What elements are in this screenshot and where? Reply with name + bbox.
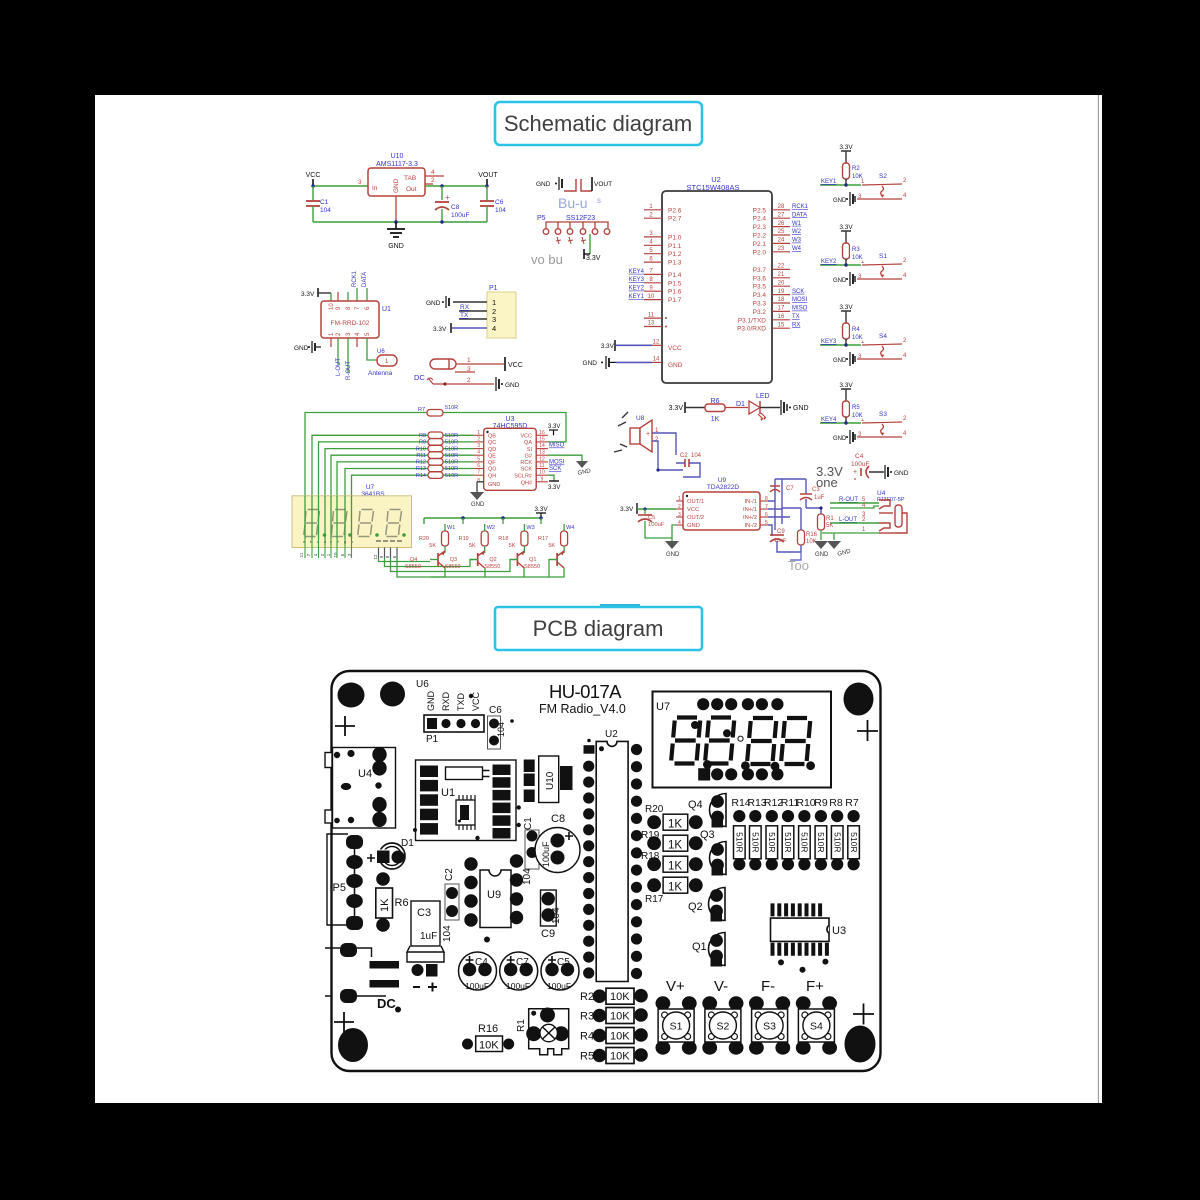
svg-text:27: 27 xyxy=(778,212,785,218)
svg-text:P1: P1 xyxy=(489,285,498,292)
svg-text:C7: C7 xyxy=(786,486,794,492)
svg-text:SS12F23: SS12F23 xyxy=(566,215,595,222)
svg-text:C6: C6 xyxy=(495,199,504,206)
svg-text:U2: U2 xyxy=(605,729,618,740)
svg-text:S8550: S8550 xyxy=(484,564,500,570)
svg-text:HU-017A: HU-017A xyxy=(549,681,622,702)
svg-text:10: 10 xyxy=(648,294,655,300)
svg-text:QH: QH xyxy=(488,473,496,479)
svg-text:10K: 10K xyxy=(479,1040,499,1052)
svg-text:R10: R10 xyxy=(796,797,815,809)
svg-text:104: 104 xyxy=(522,868,533,885)
svg-text:R9: R9 xyxy=(814,797,828,809)
svg-text:100uF: 100uF xyxy=(547,981,571,991)
svg-text:R3: R3 xyxy=(852,247,860,253)
svg-text:5K: 5K xyxy=(469,543,476,549)
svg-text:P1.3: P1.3 xyxy=(668,260,682,267)
svg-text:7: 7 xyxy=(477,470,480,476)
svg-text:3: 3 xyxy=(358,179,362,186)
svg-text:13: 13 xyxy=(648,321,655,327)
svg-text:Q3: Q3 xyxy=(700,829,715,841)
svg-text:R14: R14 xyxy=(416,473,426,479)
svg-text:10K: 10K xyxy=(852,255,863,261)
svg-text:W1: W1 xyxy=(447,525,455,531)
svg-text:104: 104 xyxy=(551,907,562,924)
svg-text:R10: R10 xyxy=(416,446,426,452)
svg-text:In: In xyxy=(372,185,378,192)
svg-text:25: 25 xyxy=(778,229,785,235)
svg-text:GND: GND xyxy=(668,362,683,369)
svg-text:100uF: 100uF xyxy=(648,522,665,528)
svg-text:D1: D1 xyxy=(736,401,745,408)
svg-text:vo bu: vo bu xyxy=(531,252,563,267)
svg-text:GND: GND xyxy=(815,552,829,558)
svg-text:1K: 1K xyxy=(668,819,682,831)
svg-text:KEY2: KEY2 xyxy=(821,259,837,265)
svg-text:C2: C2 xyxy=(680,453,688,459)
svg-text:C6: C6 xyxy=(489,705,502,716)
svg-text:3.3V: 3.3V xyxy=(301,291,315,298)
svg-text:10K: 10K xyxy=(610,1011,630,1023)
svg-text:3.3V: 3.3V xyxy=(548,485,560,491)
svg-text:VOUT: VOUT xyxy=(478,172,498,179)
svg-text:QG: QG xyxy=(488,467,497,473)
svg-text:1: 1 xyxy=(467,357,471,364)
svg-text:VCC: VCC xyxy=(306,172,321,179)
svg-text:LED: LED xyxy=(756,393,770,400)
svg-text:11: 11 xyxy=(539,463,544,469)
svg-text:12: 12 xyxy=(373,554,378,560)
svg-text:R1: R1 xyxy=(826,516,834,522)
svg-text:GND: GND xyxy=(894,470,909,477)
svg-text:100uF: 100uF xyxy=(506,981,530,991)
svg-text:3.3V: 3.3V xyxy=(586,255,601,262)
svg-text:P2.3: P2.3 xyxy=(753,224,767,231)
svg-text:3: 3 xyxy=(492,315,496,324)
svg-text:SCK: SCK xyxy=(792,289,804,295)
svg-text:PCB diagram: PCB diagram xyxy=(533,616,664,641)
svg-text:1: 1 xyxy=(678,496,681,502)
svg-text:15: 15 xyxy=(778,322,785,328)
svg-text:10K: 10K xyxy=(852,335,863,341)
svg-text:10K: 10K xyxy=(852,413,863,419)
svg-text:DC: DC xyxy=(414,373,425,382)
svg-text:S1: S1 xyxy=(670,1021,683,1033)
svg-text:17: 17 xyxy=(778,306,785,312)
svg-text:W3: W3 xyxy=(526,525,534,531)
svg-text:R4: R4 xyxy=(852,327,860,333)
svg-text:RCK: RCK xyxy=(520,460,532,466)
svg-text:5K: 5K xyxy=(548,543,555,549)
svg-text:R13: R13 xyxy=(416,466,426,472)
svg-text:8: 8 xyxy=(477,478,480,484)
svg-text:GND: GND xyxy=(583,360,598,367)
svg-text:14: 14 xyxy=(539,443,545,449)
svg-text:2: 2 xyxy=(431,177,435,184)
svg-text:W2: W2 xyxy=(487,525,495,531)
svg-text:R2: R2 xyxy=(852,166,860,172)
svg-text:VCC: VCC xyxy=(687,507,699,513)
svg-text:KEY2: KEY2 xyxy=(629,286,645,292)
svg-text:W4: W4 xyxy=(792,246,802,252)
svg-text:s: s xyxy=(597,196,601,205)
svg-text:QF: QF xyxy=(488,460,496,466)
svg-text:GND: GND xyxy=(488,482,500,488)
svg-text:GND: GND xyxy=(833,198,847,204)
svg-text:P3.4: P3.4 xyxy=(753,292,767,299)
svg-text:12: 12 xyxy=(653,340,660,346)
svg-text:R16: R16 xyxy=(478,1023,498,1035)
svg-text:Schematic diagram: Schematic diagram xyxy=(504,111,692,136)
svg-text:104: 104 xyxy=(496,722,506,737)
svg-text:U6: U6 xyxy=(416,679,429,690)
svg-text:KEY3: KEY3 xyxy=(821,339,837,345)
svg-text:KEY1: KEY1 xyxy=(629,294,645,300)
svg-text:RCK1: RCK1 xyxy=(352,270,358,287)
svg-text:GND: GND xyxy=(294,345,309,352)
svg-text:P1.5: P1.5 xyxy=(668,280,682,287)
svg-text:W1: W1 xyxy=(792,221,802,227)
svg-text:3.3V: 3.3V xyxy=(620,506,634,513)
svg-text:QB: QB xyxy=(488,434,496,440)
svg-text:100uF: 100uF xyxy=(541,841,551,867)
svg-text:GND: GND xyxy=(505,382,520,389)
svg-text:S8550: S8550 xyxy=(445,564,461,570)
svg-text:R7: R7 xyxy=(418,407,425,413)
svg-text:C9: C9 xyxy=(777,529,785,535)
svg-text:13: 13 xyxy=(539,450,545,456)
svg-text:C5: C5 xyxy=(557,957,570,968)
svg-text:Out: Out xyxy=(406,186,417,193)
svg-text:3.3V: 3.3V xyxy=(839,144,853,151)
svg-text:5K: 5K xyxy=(826,523,833,529)
svg-text:510R: 510R xyxy=(445,405,458,411)
svg-text:C3: C3 xyxy=(417,907,431,919)
svg-text:C8: C8 xyxy=(451,204,460,211)
svg-text:S8550: S8550 xyxy=(405,564,421,570)
svg-text:R11: R11 xyxy=(416,453,426,459)
svg-text:1K: 1K xyxy=(668,882,682,894)
svg-text:P2.6: P2.6 xyxy=(668,207,682,214)
svg-text:+: + xyxy=(646,431,650,438)
svg-text:GND: GND xyxy=(426,691,436,712)
svg-text:100uF: 100uF xyxy=(465,981,489,991)
svg-text:U4: U4 xyxy=(877,490,886,497)
svg-text:QC: QC xyxy=(488,440,496,446)
svg-text:11: 11 xyxy=(299,552,304,557)
svg-text:F-: F- xyxy=(761,978,775,995)
svg-text:QD: QD xyxy=(488,447,496,453)
svg-text:100uF: 100uF xyxy=(451,212,469,219)
svg-text:GND: GND xyxy=(471,502,485,508)
svg-text:SCK: SCK xyxy=(521,467,533,473)
svg-text:GND: GND xyxy=(536,181,551,188)
svg-text:KEY3: KEY3 xyxy=(629,277,645,283)
svg-text:R-OUT: R-OUT xyxy=(346,361,352,380)
svg-text:10: 10 xyxy=(539,470,545,476)
svg-text:S1: S1 xyxy=(879,253,887,260)
svg-text:U4: U4 xyxy=(358,768,372,780)
svg-text:one: one xyxy=(816,475,838,490)
svg-text:U10: U10 xyxy=(391,153,404,160)
svg-text:R18: R18 xyxy=(641,851,660,862)
svg-text:23: 23 xyxy=(778,246,785,252)
svg-text:6: 6 xyxy=(477,463,480,469)
svg-text:5K: 5K xyxy=(509,543,516,549)
svg-text:U8: U8 xyxy=(636,415,645,422)
svg-text:P1: P1 xyxy=(426,734,439,745)
svg-text:C4: C4 xyxy=(855,453,864,460)
svg-text:C1: C1 xyxy=(320,199,329,206)
svg-text:P3.0/RXD: P3.0/RXD xyxy=(737,326,766,333)
svg-text:R16: R16 xyxy=(806,532,818,538)
svg-text:QA: QA xyxy=(524,440,532,446)
svg-text:5: 5 xyxy=(477,456,480,462)
svg-text:S4: S4 xyxy=(810,1021,823,1033)
svg-text:Q1: Q1 xyxy=(529,557,536,563)
svg-text:MISO: MISO xyxy=(792,306,808,312)
svg-text:VOUT: VOUT xyxy=(594,181,612,188)
svg-text:U10: U10 xyxy=(545,771,556,790)
svg-text:FM Radio_V4.0: FM Radio_V4.0 xyxy=(539,702,626,716)
svg-text:1K: 1K xyxy=(379,898,391,912)
svg-text:4: 4 xyxy=(477,450,480,456)
svg-text:R3: R3 xyxy=(580,1011,594,1023)
svg-text:6: 6 xyxy=(765,512,768,518)
svg-text:16: 16 xyxy=(778,314,785,320)
svg-text:C8: C8 xyxy=(551,813,565,825)
svg-text:P2.7: P2.7 xyxy=(668,216,682,223)
svg-text:U9: U9 xyxy=(487,889,501,901)
svg-text:4: 4 xyxy=(678,520,681,526)
svg-text:3.3V: 3.3V xyxy=(433,326,447,333)
svg-text:GND: GND xyxy=(393,178,400,193)
svg-text:510R: 510R xyxy=(445,446,458,452)
svg-text:R9: R9 xyxy=(419,440,426,446)
svg-text:P1.1: P1.1 xyxy=(668,243,682,250)
svg-text:22: 22 xyxy=(778,264,785,270)
svg-text:RX: RX xyxy=(792,322,800,328)
svg-text:1K: 1K xyxy=(668,840,682,852)
svg-text:KEY1: KEY1 xyxy=(821,179,837,185)
svg-text:16: 16 xyxy=(539,430,545,436)
svg-text:QE: QE xyxy=(488,453,496,459)
svg-text:18: 18 xyxy=(778,297,785,303)
svg-text:R19: R19 xyxy=(641,830,660,841)
svg-text:C5: C5 xyxy=(648,515,655,521)
svg-text:P5: P5 xyxy=(537,215,546,222)
svg-text:OUT/2: OUT/2 xyxy=(687,515,704,521)
svg-text:D1: D1 xyxy=(401,838,414,849)
svg-text:Q4: Q4 xyxy=(410,557,417,563)
svg-text:DATA: DATA xyxy=(792,212,807,218)
svg-text:Too: Too xyxy=(788,558,809,573)
svg-text:24: 24 xyxy=(778,238,785,244)
svg-text:4: 4 xyxy=(492,324,496,333)
svg-text:1: 1 xyxy=(477,430,480,436)
svg-text:7: 7 xyxy=(765,504,768,510)
svg-text:8: 8 xyxy=(765,496,768,502)
svg-text:P2.5: P2.5 xyxy=(753,207,767,214)
svg-text:GND: GND xyxy=(687,523,700,529)
svg-text:Q2: Q2 xyxy=(489,557,496,563)
svg-text:MOSI: MOSI xyxy=(549,460,565,466)
svg-text:+: + xyxy=(853,469,857,476)
svg-text:RX: RX xyxy=(460,304,470,311)
svg-text:10K: 10K xyxy=(610,1031,630,1043)
svg-text:VCC: VCC xyxy=(508,362,523,369)
svg-text:GND: GND xyxy=(388,243,404,250)
svg-text:TXD: TXD xyxy=(456,692,466,711)
svg-text:L-OUT: L-OUT xyxy=(336,358,342,376)
svg-text:IN+/2: IN+/2 xyxy=(743,515,757,521)
svg-text:104: 104 xyxy=(442,925,453,942)
svg-text:R6: R6 xyxy=(395,897,409,909)
svg-text:2: 2 xyxy=(477,436,480,442)
svg-text:C9: C9 xyxy=(541,928,555,940)
svg-text:P1.0: P1.0 xyxy=(668,234,682,241)
svg-text:104: 104 xyxy=(691,453,702,459)
svg-text:10K: 10K xyxy=(610,1051,630,1063)
svg-text:R17: R17 xyxy=(645,894,664,905)
svg-text:OUT/1: OUT/1 xyxy=(687,499,704,505)
svg-text:R20: R20 xyxy=(645,804,664,815)
svg-text:1uF: 1uF xyxy=(420,931,437,942)
svg-text:DATA: DATA xyxy=(362,272,368,287)
svg-text:U7: U7 xyxy=(656,701,670,713)
svg-text:5K: 5K xyxy=(429,543,436,549)
svg-text:MISO: MISO xyxy=(549,443,565,449)
svg-text:11: 11 xyxy=(648,312,655,318)
svg-text:P3.1/TXD: P3.1/TXD xyxy=(738,317,766,324)
svg-text:P2.1: P2.1 xyxy=(753,241,767,248)
svg-text:P5: P5 xyxy=(333,882,346,894)
svg-text:Q2: Q2 xyxy=(688,901,703,913)
svg-text:510R: 510R xyxy=(445,433,458,439)
svg-text:C2: C2 xyxy=(444,868,455,881)
svg-text:510R: 510R xyxy=(445,460,458,466)
svg-text:21: 21 xyxy=(778,272,785,278)
svg-text:U1: U1 xyxy=(441,787,455,799)
svg-text:R2: R2 xyxy=(580,991,594,1003)
svg-text:U7: U7 xyxy=(366,484,375,491)
svg-text:C7: C7 xyxy=(516,957,529,968)
svg-text:P3.3: P3.3 xyxy=(753,301,767,308)
svg-text:4: 4 xyxy=(431,169,435,176)
svg-text:26: 26 xyxy=(778,221,785,227)
svg-text:510R: 510R xyxy=(445,466,458,472)
svg-text:TX: TX xyxy=(792,314,800,320)
svg-text:TDA2822D: TDA2822D xyxy=(707,484,739,491)
svg-text:1: 1 xyxy=(492,298,496,307)
svg-text:W3: W3 xyxy=(792,238,802,244)
svg-text:S4: S4 xyxy=(879,333,887,340)
svg-text:RXD: RXD xyxy=(441,691,451,711)
svg-text:R-OUT: R-OUT xyxy=(839,497,858,503)
svg-text:P1.4: P1.4 xyxy=(668,272,682,279)
svg-text:510R: 510R xyxy=(445,473,458,479)
svg-text:U3: U3 xyxy=(832,925,846,937)
svg-text:R20: R20 xyxy=(419,536,429,542)
svg-text:L-OUT: L-OUT xyxy=(839,517,857,523)
svg-text:Antenna: Antenna xyxy=(368,370,393,377)
svg-text:P1.2: P1.2 xyxy=(668,251,682,258)
svg-text:S8550: S8550 xyxy=(524,564,540,570)
svg-text:R1: R1 xyxy=(516,1019,527,1032)
svg-text:P3.2: P3.2 xyxy=(753,309,767,316)
svg-text:P1.7: P1.7 xyxy=(668,297,682,304)
svg-text:100uF: 100uF xyxy=(851,461,869,468)
svg-text:3: 3 xyxy=(678,512,681,518)
svg-text:2: 2 xyxy=(467,377,471,384)
svg-text:3.3V: 3.3V xyxy=(548,424,560,430)
svg-text:W4: W4 xyxy=(566,525,574,531)
svg-text:P2.0: P2.0 xyxy=(753,249,767,256)
svg-text:S3: S3 xyxy=(879,411,887,418)
svg-text:R8: R8 xyxy=(829,797,843,809)
svg-text:KEY4: KEY4 xyxy=(629,269,645,275)
svg-text:28: 28 xyxy=(778,204,785,210)
svg-text:3.3V: 3.3V xyxy=(601,343,615,350)
svg-text:3.3V: 3.3V xyxy=(534,506,548,513)
svg-text:19: 19 xyxy=(778,289,785,295)
svg-text:GND: GND xyxy=(666,552,680,558)
svg-text:3: 3 xyxy=(477,443,480,449)
svg-text:QH#: QH# xyxy=(521,480,533,486)
svg-text:R8: R8 xyxy=(419,433,426,439)
svg-text:S2: S2 xyxy=(879,173,887,180)
svg-text:IN-/1: IN-/1 xyxy=(744,499,757,505)
svg-text:10uF: 10uF xyxy=(774,538,787,544)
svg-text:MOSI: MOSI xyxy=(792,297,808,303)
svg-text:P3.5: P3.5 xyxy=(753,284,767,291)
svg-text:DC: DC xyxy=(377,996,396,1011)
svg-text:104: 104 xyxy=(320,207,331,214)
svg-text:P3.6: P3.6 xyxy=(753,275,767,282)
svg-text:IN-/2: IN-/2 xyxy=(744,523,757,529)
svg-text:C4: C4 xyxy=(475,957,488,968)
svg-text:P1.6: P1.6 xyxy=(668,289,682,296)
svg-text:P2.2: P2.2 xyxy=(753,233,767,240)
svg-text:IN+/1: IN+/1 xyxy=(743,507,757,513)
svg-text:SCLR#: SCLR# xyxy=(514,473,533,479)
svg-text:R18: R18 xyxy=(498,536,508,542)
svg-text:GND: GND xyxy=(426,300,441,307)
svg-text:1K: 1K xyxy=(668,861,682,873)
svg-text:U9: U9 xyxy=(718,477,727,484)
svg-text:3.3V: 3.3V xyxy=(669,405,684,412)
svg-text:10: 10 xyxy=(329,303,335,310)
svg-text:1uF: 1uF xyxy=(814,495,825,501)
svg-text:104: 104 xyxy=(495,207,506,214)
svg-text:9: 9 xyxy=(541,476,544,482)
svg-text:C1: C1 xyxy=(523,817,534,830)
svg-text:F+: F+ xyxy=(806,978,824,995)
svg-text:GND: GND xyxy=(793,405,809,412)
svg-text:V-: V- xyxy=(714,978,728,995)
svg-text:VCC: VCC xyxy=(520,434,532,440)
svg-text:Bu-u: Bu-u xyxy=(558,195,588,211)
svg-text:SI: SI xyxy=(527,447,533,453)
svg-text:TX: TX xyxy=(460,312,469,319)
svg-text:FM-RRD-102: FM-RRD-102 xyxy=(331,320,370,327)
svg-text:W2: W2 xyxy=(792,229,802,235)
svg-text:U3: U3 xyxy=(506,416,515,423)
svg-text:15: 15 xyxy=(539,436,545,442)
svg-text:14: 14 xyxy=(653,357,660,363)
svg-text:20: 20 xyxy=(778,280,785,286)
svg-text:G#: G# xyxy=(525,453,533,459)
